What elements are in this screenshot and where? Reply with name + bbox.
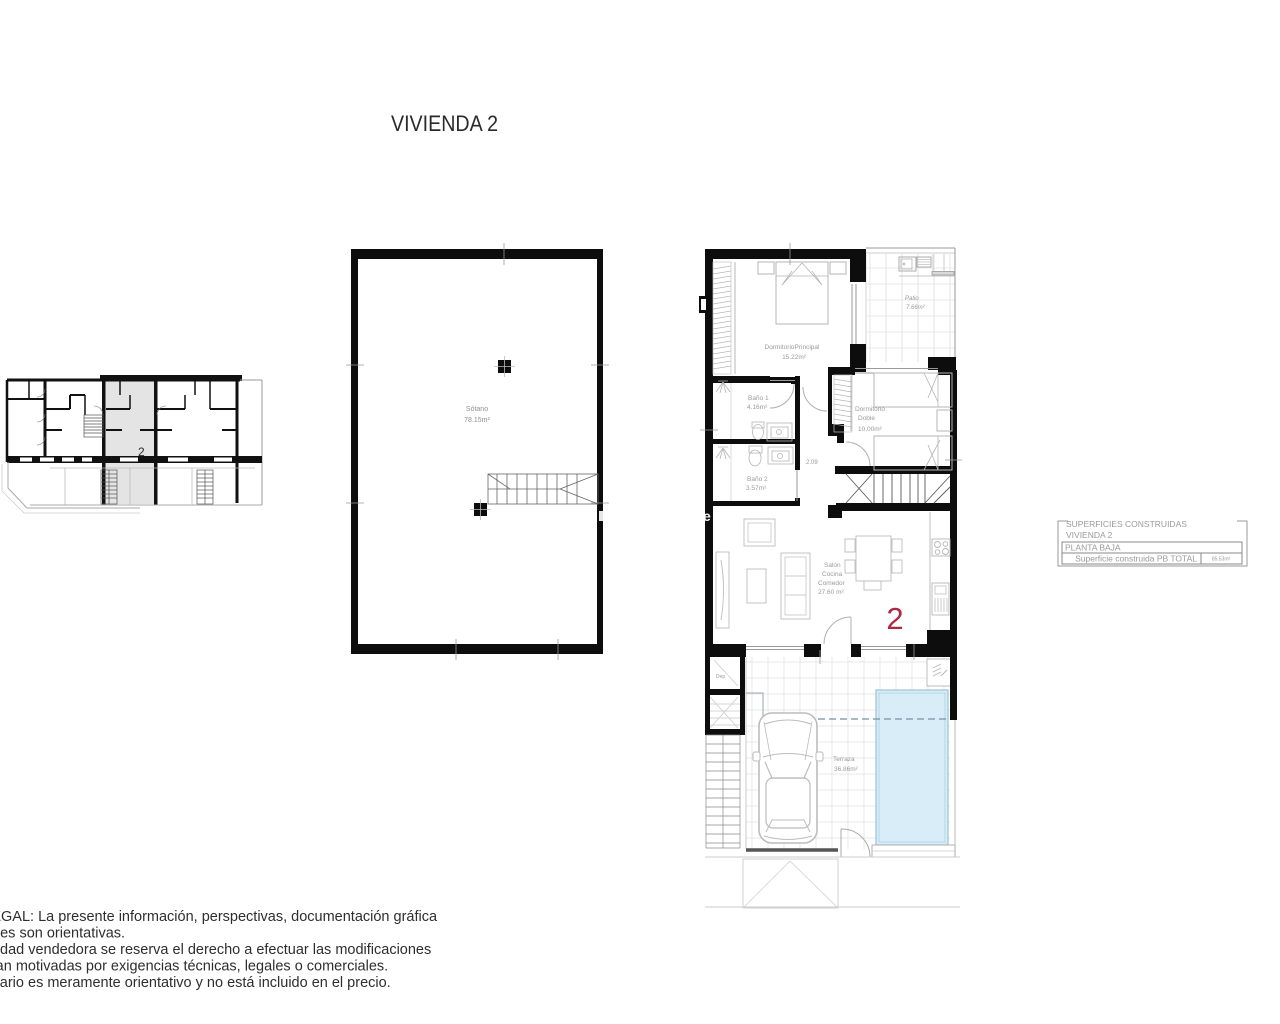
- svg-text:AVISO LEGAL: La presente infor: AVISO LEGAL: La presente información, pe…: [0, 909, 438, 925]
- svg-text:Sótano: Sótano: [466, 406, 488, 413]
- svg-text:Doble: Doble: [858, 415, 875, 422]
- svg-text:85.53m²: 85.53m²: [1212, 557, 1231, 563]
- svg-text:2.09: 2.09: [806, 460, 818, 466]
- svg-text:78.15m²: 78.15m²: [464, 417, 490, 424]
- svg-text:3.57m²: 3.57m²: [746, 485, 767, 492]
- svg-text:que vengan motivadas por exige: que vengan motivadas por exigencias técn…: [0, 959, 388, 975]
- svg-text:PLANTA BAJA: PLANTA BAJA: [1065, 543, 1121, 553]
- svg-text:SUPERFICIES CONSTRUIDAS: SUPERFICIES CONSTRUIDAS: [1066, 519, 1187, 529]
- svg-text:Superficie construida PB TOTAL: Superficie construida PB TOTAL: [1075, 554, 1197, 564]
- svg-text:Salón: Salón: [824, 562, 841, 569]
- svg-text:Terraza: Terraza: [833, 756, 855, 763]
- svg-text:DormitorioPrincipal: DormitorioPrincipal: [765, 344, 820, 351]
- svg-text:e: e: [703, 508, 711, 524]
- svg-text:2: 2: [886, 601, 903, 636]
- svg-text:La sociedad vendedora se reser: La sociedad vendedora se reserva el dere…: [0, 942, 431, 958]
- svg-text:4.16m²: 4.16m²: [747, 404, 768, 411]
- svg-text:Dormitorio: Dormitorio: [855, 406, 885, 413]
- svg-text:10.00m²: 10.00m²: [858, 426, 883, 433]
- svg-text:las imágenes son orientativas.: las imágenes son orientativas.: [0, 926, 125, 942]
- svg-text:15.22m²: 15.22m²: [782, 354, 807, 361]
- svg-text:Cocina: Cocina: [822, 571, 843, 578]
- svg-text:VIVIENDA 2: VIVIENDA 2: [1066, 530, 1113, 540]
- svg-text:VIVIENDA 2: VIVIENDA 2: [391, 111, 498, 136]
- svg-text:Comedor: Comedor: [818, 580, 846, 587]
- svg-text:36.86m²: 36.86m²: [834, 766, 859, 773]
- svg-text:27.60 m²: 27.60 m²: [818, 589, 844, 596]
- svg-text:2: 2: [138, 445, 145, 459]
- svg-text:Baño 2: Baño 2: [747, 476, 768, 483]
- svg-text:7.66m²: 7.66m²: [906, 305, 926, 311]
- svg-text:El mobiliario es meramente ori: El mobiliario es meramente orientativo y…: [0, 975, 391, 991]
- svg-text:Dep.: Dep.: [716, 674, 727, 680]
- svg-text:Patio: Patio: [905, 296, 919, 302]
- svg-text:Baño 1: Baño 1: [748, 395, 769, 402]
